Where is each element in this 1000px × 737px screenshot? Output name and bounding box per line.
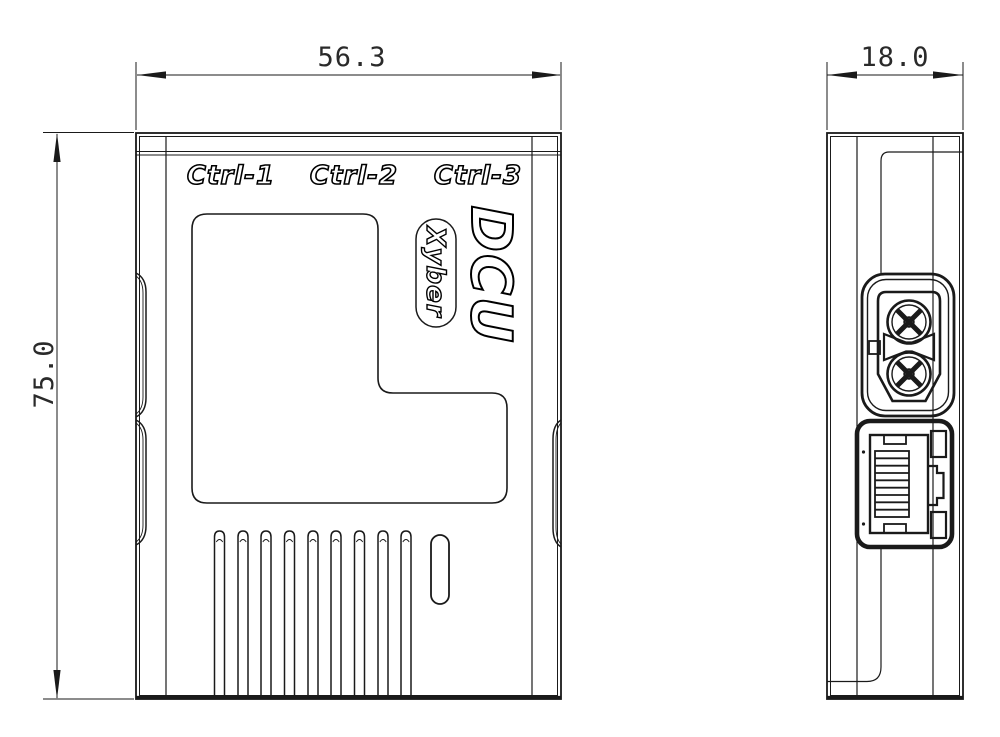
height-arrow-bottom (53, 670, 60, 699)
port-label-ctrl1: Ctrl-1 (187, 161, 275, 191)
height-arrow-top (53, 133, 60, 162)
depth-dim-value: 18.0 (860, 42, 929, 73)
xt30-power-connector (862, 274, 954, 416)
xt30-bowtie-key (884, 334, 934, 360)
left-bump-top (136, 273, 146, 417)
port-label-ctrl2: Ctrl-2 (310, 161, 398, 191)
vent-slot (401, 531, 411, 697)
dimension-depth: 18.0 (827, 42, 963, 130)
brand-text: Xyber (420, 224, 450, 318)
vent-slot (215, 531, 225, 697)
width-arrow-left (137, 71, 166, 78)
left-side-connector-bumps (136, 273, 146, 545)
vent-slot-cap (216, 540, 222, 543)
xt30-pin-bottom (888, 353, 931, 396)
vent-slot (331, 531, 341, 697)
pin-cross-slot (897, 310, 922, 335)
rj45-bezel (857, 421, 952, 547)
vent-slot-cap (356, 540, 362, 543)
side-top-chamfer-edge (881, 152, 963, 273)
rj45-contact-block (875, 451, 909, 517)
port-label-ctrl3: Ctrl-3 (434, 161, 522, 191)
rj45-top-tab (884, 435, 906, 444)
front-lid-band (136, 152, 561, 156)
vent-slot-cap (286, 540, 292, 543)
side-bottom-chamfer-edge (827, 548, 881, 682)
width-dim-value: 56.3 (317, 42, 386, 73)
vent-slot (355, 531, 365, 697)
height-dim-value: 75.0 (29, 339, 60, 408)
rj45-contact-pins (875, 458, 909, 509)
height-dim-lines (43, 133, 134, 700)
depth-arrow-right (933, 71, 963, 78)
xt30-pin-top (888, 301, 931, 344)
rj45-bottom-tab (884, 524, 906, 533)
pill-opening (431, 535, 449, 604)
vent-slot (308, 531, 318, 697)
vent-slot-cap (263, 540, 269, 543)
rj45-bezel-dot (862, 522, 865, 525)
vent-slot (261, 531, 271, 697)
vent-slot-cap (403, 540, 409, 543)
rj45-ethernet-port (857, 421, 952, 547)
side-view (827, 133, 963, 699)
vent-slot (378, 531, 388, 697)
rj45-jack-body (870, 435, 928, 533)
dcu-mechanical-drawing: Ctrl-1 Ctrl-2 Ctrl-3 Xyber DCU 56.3 75.0 (0, 0, 1000, 737)
front-view: Ctrl-1 Ctrl-2 Ctrl-3 Xyber DCU (136, 133, 561, 699)
vent-slot-cap (240, 540, 246, 543)
technical-drawing-canvas: Ctrl-1 Ctrl-2 Ctrl-3 Xyber DCU 56.3 75.0 (0, 0, 1000, 737)
rj45-bezel-dot (862, 450, 865, 453)
vent-slot-cap (380, 540, 386, 543)
xt30-shell (878, 292, 940, 401)
vent-slot (285, 531, 295, 697)
product-name-text: DCU (458, 205, 523, 344)
vent-slot-cap (333, 540, 339, 543)
depth-arrow-left (827, 71, 857, 78)
vent-slots (215, 531, 412, 697)
width-arrow-right (532, 71, 561, 78)
dimension-width: 56.3 (136, 42, 561, 130)
vent-slot-cap (310, 540, 316, 543)
rj45-latch-channel (928, 466, 944, 505)
pin-cross-slot (897, 362, 922, 387)
left-bump-bottom (136, 420, 146, 545)
dimension-height: 75.0 (29, 133, 134, 700)
vent-slot (238, 531, 248, 697)
